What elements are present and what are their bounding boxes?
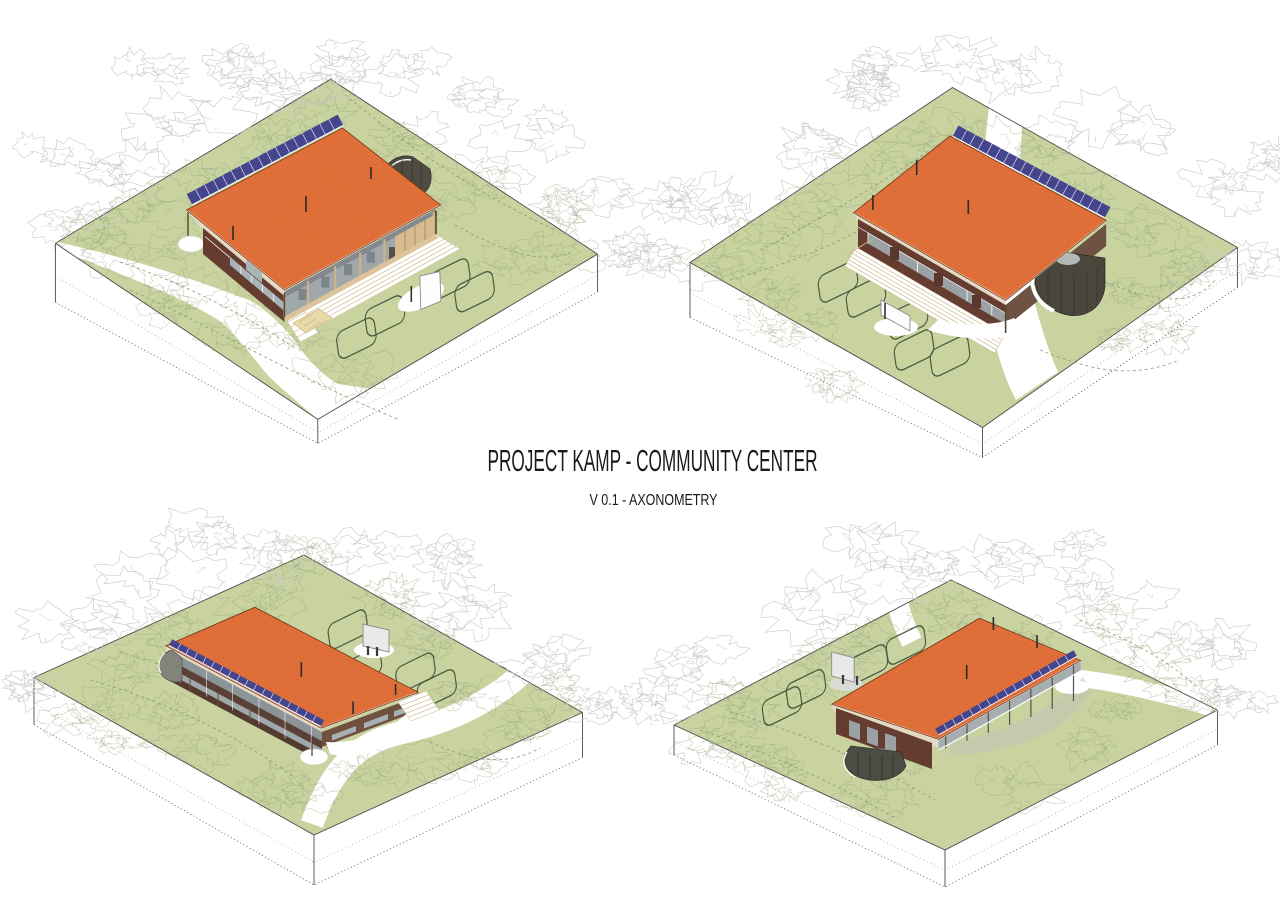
svg-text:V 0.1 - AXONOMETRY: V 0.1 - AXONOMETRY	[590, 490, 718, 508]
svg-text:PROJECT KAMP - COMMUNITY CENTE: PROJECT KAMP - COMMUNITY CENTER	[488, 442, 818, 478]
